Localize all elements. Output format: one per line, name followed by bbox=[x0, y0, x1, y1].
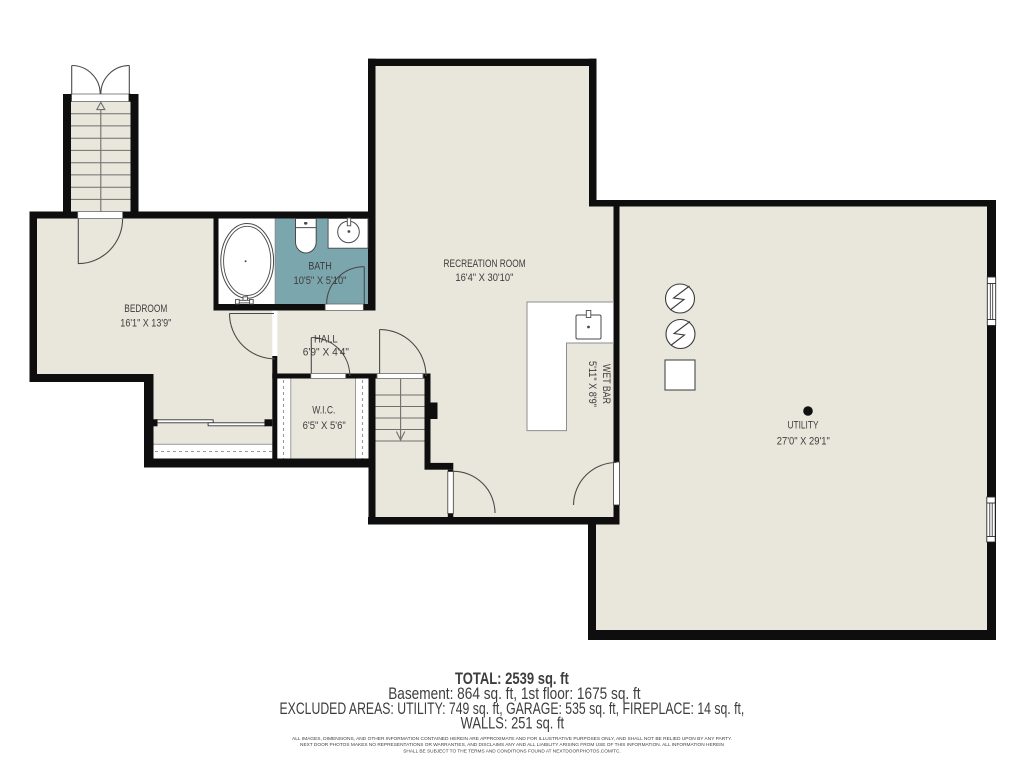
svg-text:NEXT DOOR PHOTOS MAKES NO REPR: NEXT DOOR PHOTOS MAKES NO REPRESENTATION… bbox=[300, 742, 725, 748]
svg-text:27'0" X 29'1": 27'0" X 29'1" bbox=[777, 435, 830, 447]
svg-text:BEDROOM: BEDROOM bbox=[124, 303, 167, 315]
svg-text:WALLS: 251 sq. ft: WALLS: 251 sq. ft bbox=[461, 715, 565, 733]
svg-text:HALL: HALL bbox=[314, 333, 338, 345]
svg-text:UTILITY: UTILITY bbox=[788, 419, 819, 431]
svg-text:RECREATION ROOM: RECREATION ROOM bbox=[444, 258, 526, 270]
svg-text:BATH: BATH bbox=[308, 260, 332, 272]
svg-text:6'5" X 5'6": 6'5" X 5'6" bbox=[303, 420, 346, 432]
svg-text:ALL IMAGES, DIMENSIONS, AND OT: ALL IMAGES, DIMENSIONS, AND OTHER INFORM… bbox=[292, 736, 732, 742]
svg-text:6'9" X 4'4": 6'9" X 4'4" bbox=[303, 347, 349, 359]
svg-text:W.I.C.: W.I.C. bbox=[312, 405, 335, 417]
svg-text:SHALL BE SUBJECT TO THE TERMS: SHALL BE SUBJECT TO THE TERMS AND CONDIT… bbox=[403, 749, 621, 755]
svg-text:WET BAR: WET BAR bbox=[600, 364, 612, 404]
svg-text:16'1" X 13'9": 16'1" X 13'9" bbox=[120, 318, 171, 330]
svg-text:5'11" X 8'9": 5'11" X 8'9" bbox=[586, 361, 598, 407]
svg-text:16'4" X 30'10": 16'4" X 30'10" bbox=[455, 272, 513, 284]
svg-text:10'5" X 5'10": 10'5" X 5'10" bbox=[294, 275, 347, 287]
